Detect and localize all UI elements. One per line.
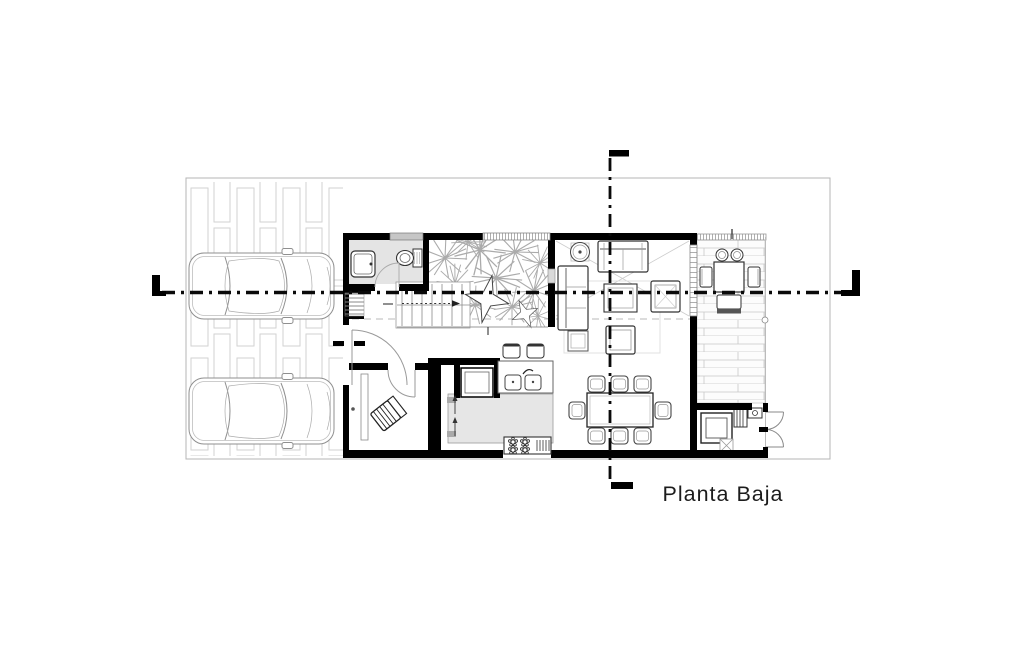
dining-chair-icon bbox=[634, 428, 651, 444]
floor-plan-sheet: Planta Baja bbox=[0, 0, 1024, 662]
section-marker-bottom bbox=[611, 482, 633, 489]
entry-closet bbox=[345, 293, 364, 316]
utility-shelf-icon bbox=[734, 409, 747, 427]
armchair-icon bbox=[651, 281, 680, 312]
section-marker-right bbox=[852, 270, 860, 296]
outdoor-table bbox=[714, 262, 744, 292]
car-2-icon bbox=[189, 374, 334, 449]
dining-chair-icon bbox=[634, 376, 651, 392]
sink-icon bbox=[351, 251, 375, 277]
sofa-2-icon bbox=[558, 266, 588, 330]
car-1-icon bbox=[189, 249, 334, 324]
round-side-table-icon bbox=[571, 243, 590, 262]
window-courtyard bbox=[483, 233, 550, 240]
floor-plan-canvas: Planta Baja bbox=[0, 0, 1024, 662]
plan-title: Planta Baja bbox=[663, 482, 784, 506]
wall-point bbox=[351, 407, 355, 411]
door-stop bbox=[759, 427, 768, 432]
dining-chair-icon bbox=[655, 402, 671, 419]
shelf bbox=[361, 374, 368, 440]
dining-chair-icon bbox=[588, 376, 605, 392]
dining-chair-icon bbox=[588, 428, 605, 444]
kitchen-island bbox=[448, 394, 553, 443]
sliding-glass-door bbox=[690, 245, 697, 316]
toilet-icon bbox=[397, 249, 423, 267]
section-marker-top bbox=[609, 150, 629, 157]
window-living bbox=[548, 269, 555, 283]
side-table-icon bbox=[568, 331, 588, 351]
driveway bbox=[188, 182, 343, 456]
dining-chair-icon bbox=[611, 428, 628, 444]
dining-table bbox=[587, 393, 653, 427]
dining-chair-icon bbox=[611, 376, 628, 392]
sofa-icon bbox=[598, 241, 648, 272]
window-bathroom bbox=[390, 233, 423, 240]
stove-icon bbox=[504, 437, 551, 454]
refrigerator-icon bbox=[461, 368, 493, 397]
dining-chair-icon bbox=[569, 402, 585, 419]
column bbox=[762, 317, 768, 323]
